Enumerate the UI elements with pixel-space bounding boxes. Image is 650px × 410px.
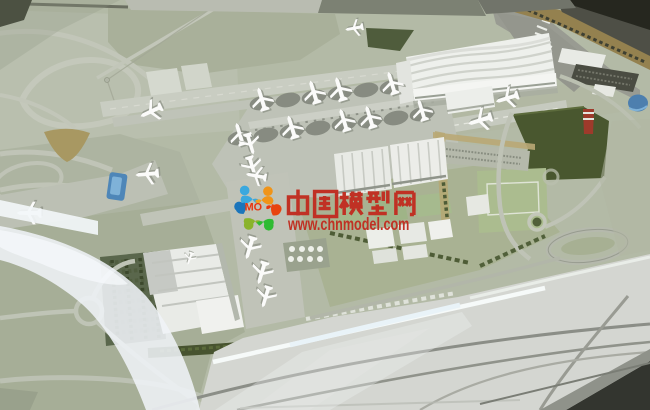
svg-text:MO: MO <box>245 202 262 214</box>
